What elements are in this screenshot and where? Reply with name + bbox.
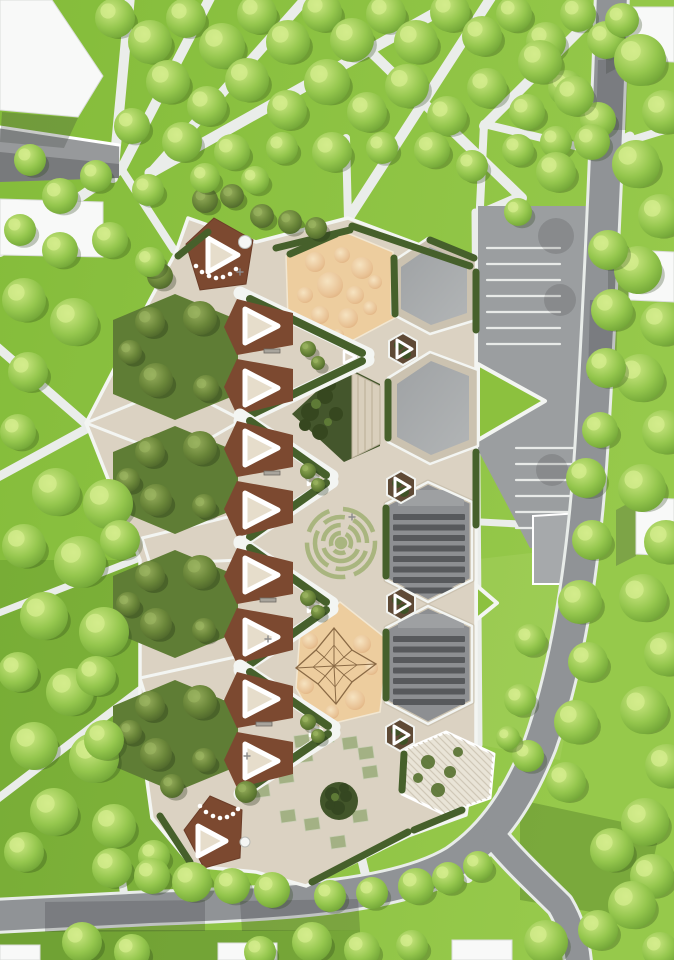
tree-highlight [188, 560, 201, 573]
stepping-dot [236, 807, 241, 812]
tree-highlight [302, 465, 308, 471]
tree-canopy [132, 174, 164, 206]
tree-canopy [190, 163, 220, 193]
tree-highlight [13, 357, 28, 372]
tree-highlight [26, 598, 44, 616]
tree-canopy [135, 437, 165, 467]
pavilion-tree [421, 755, 435, 769]
tree-highlight [472, 73, 487, 88]
stepping-dot [234, 267, 239, 272]
tree-canopy [192, 494, 216, 518]
tree-highlight [142, 844, 154, 856]
planter-box [342, 736, 359, 750]
tree-canopy [311, 356, 325, 370]
bench-row [393, 689, 465, 695]
tree-canopy [514, 624, 546, 656]
tree-highlight [573, 647, 588, 662]
bench-row [393, 535, 465, 541]
tree-highlight [219, 139, 233, 153]
tree-highlight [18, 148, 30, 160]
tree-canopy [620, 686, 668, 734]
tree-canopy [312, 132, 352, 172]
tree-canopy [100, 520, 140, 560]
tree-highlight [188, 436, 201, 449]
tree-canopy [135, 307, 165, 337]
tree-canopy [347, 92, 387, 132]
tree-highlight [84, 164, 96, 176]
stepping-dot [221, 275, 226, 280]
tree-highlight [61, 543, 81, 563]
tree-highlight [36, 794, 54, 812]
tree-highlight [651, 750, 668, 767]
bench-row [393, 514, 465, 520]
tree-canopy [578, 910, 618, 950]
sand-mound [302, 633, 318, 649]
tree-highlight [197, 379, 207, 389]
tree-canopy [20, 592, 68, 640]
tree-highlight [192, 91, 207, 106]
tree-canopy [432, 862, 464, 894]
shrub-light [311, 399, 321, 409]
tree-highlight [139, 251, 150, 262]
tree-canopy [591, 289, 633, 331]
tree-highlight [403, 873, 417, 887]
tree-highlight [9, 837, 24, 852]
planting-circle-highlight [331, 793, 339, 801]
tree-canopy [300, 714, 316, 730]
tree-canopy [92, 804, 136, 848]
stepping-dot [211, 814, 216, 819]
tree-highlight [8, 530, 25, 547]
parking-shadow [538, 218, 574, 254]
tree-highlight [621, 41, 641, 61]
bench-row [393, 577, 465, 583]
tree-canopy [618, 464, 666, 512]
planting-circle-shrub [339, 783, 349, 793]
tree-highlight [134, 26, 151, 43]
tree-highlight [571, 463, 586, 478]
tree-highlight [432, 101, 447, 116]
building-roof [452, 940, 512, 960]
tree-highlight [52, 674, 70, 692]
tree-highlight [67, 927, 82, 942]
small-triangle-pad [387, 471, 415, 503]
tree-canopy [546, 762, 586, 802]
tree-highlight [188, 306, 201, 319]
stepping-dot [228, 272, 233, 277]
tree-highlight [119, 595, 128, 604]
tree-highlight [281, 213, 290, 222]
tree-canopy [54, 536, 106, 588]
tree-highlight [560, 706, 577, 723]
tree-highlight [646, 308, 663, 325]
tree-highlight [336, 24, 353, 41]
tree-canopy [456, 150, 488, 182]
tree-canopy [116, 592, 140, 616]
stepping-dot [214, 276, 219, 281]
tree-canopy [10, 722, 58, 770]
tree-highlight [144, 612, 156, 624]
tree-highlight [152, 66, 169, 83]
tree-canopy [300, 463, 316, 479]
bench-row [393, 636, 465, 642]
sand-mound [338, 308, 358, 328]
tree-canopy [300, 590, 316, 606]
tree-highlight [98, 810, 115, 827]
tree-highlight [506, 138, 518, 150]
tree-canopy [50, 298, 98, 346]
tree-canopy [92, 848, 132, 888]
tree-canopy [134, 858, 170, 894]
sand-mound [345, 690, 365, 710]
site-plan-render [0, 0, 674, 960]
tree-canopy [183, 431, 217, 465]
tree-highlight [259, 877, 273, 891]
bench-row [393, 556, 465, 562]
tree-highlight [56, 304, 74, 322]
tree-highlight [163, 777, 172, 786]
tree-canopy [0, 414, 36, 450]
tree-canopy [558, 580, 602, 624]
tree-highlight [8, 218, 20, 230]
tree-highlight [188, 690, 201, 703]
tree-highlight [238, 784, 246, 792]
stepping-dot [194, 264, 199, 269]
sand-mound [346, 286, 364, 304]
tree-highlight [194, 167, 205, 178]
planter-box [358, 746, 375, 760]
tree-canopy [4, 832, 44, 872]
tree-canopy [192, 748, 216, 772]
tree-canopy [42, 178, 78, 214]
tree-canopy [160, 774, 184, 798]
tree-highlight [16, 728, 34, 746]
tree-highlight [508, 202, 519, 213]
tree-highlight [626, 692, 644, 710]
tree-canopy [183, 555, 217, 589]
tree-highlight [597, 295, 613, 311]
tree-canopy [590, 828, 634, 872]
tree-canopy [266, 132, 298, 164]
bench-row [393, 668, 465, 674]
tree-canopy [250, 204, 274, 228]
tree-canopy [220, 184, 244, 208]
tree-canopy [241, 166, 269, 194]
tree-highlight [467, 21, 482, 36]
tree-highlight [272, 95, 287, 110]
tree-highlight [205, 29, 222, 46]
tree-highlight [564, 586, 581, 603]
tree-highlight [508, 688, 520, 700]
round-table [240, 837, 250, 847]
tree-canopy [14, 144, 46, 176]
stepping-dot [218, 816, 223, 821]
tree-highlight [400, 934, 412, 946]
maze-center [337, 539, 345, 547]
tree-highlight [144, 368, 157, 381]
tree-highlight [97, 853, 112, 868]
bench-row [393, 546, 465, 552]
tree-highlight [313, 358, 318, 363]
tree-canopy [183, 301, 217, 335]
tree-canopy [311, 729, 325, 743]
tree-canopy [574, 124, 610, 160]
tree-canopy [394, 20, 438, 64]
sand-mound [368, 275, 382, 289]
tree-canopy [266, 20, 310, 64]
tree-canopy [414, 132, 450, 168]
tree-highlight [524, 46, 541, 63]
tree-canopy [554, 76, 594, 116]
shrub [329, 407, 343, 421]
tree-highlight [514, 99, 528, 113]
tree-canopy [462, 16, 502, 56]
tree-highlight [370, 136, 382, 148]
tree-highlight [219, 873, 233, 887]
tree-canopy [496, 726, 520, 750]
tree-canopy [140, 738, 172, 770]
tree-canopy [30, 788, 78, 836]
tree-highlight [302, 592, 308, 598]
sand-mound [363, 301, 377, 315]
tree-highlight [541, 157, 556, 172]
tree-canopy [504, 684, 536, 716]
stepping-dot [200, 270, 205, 275]
tree-highlight [593, 235, 608, 250]
tree-canopy [566, 458, 606, 498]
tree-highlight [501, 1, 515, 15]
tree-highlight [518, 628, 530, 640]
tree-highlight [371, 0, 386, 15]
tree-canopy [385, 64, 429, 108]
tree-highlight [551, 767, 566, 782]
tree-highlight [579, 129, 593, 143]
terrace-rows [393, 614, 465, 705]
tree-canopy [80, 160, 112, 192]
tree-highlight [436, 866, 448, 878]
tree-highlight [177, 867, 192, 882]
tree-highlight [318, 884, 330, 896]
tree-highlight [248, 940, 260, 952]
tree-canopy [8, 352, 48, 392]
sand-mound [317, 272, 343, 298]
small-triangle-pad [389, 333, 417, 365]
tree-canopy [463, 851, 493, 881]
tree-canopy [84, 720, 124, 760]
tree-canopy [140, 484, 172, 516]
tree-highlight [86, 614, 105, 633]
tree-canopy [254, 872, 290, 908]
pavilion-tree [413, 773, 423, 783]
tree-canopy [79, 607, 129, 657]
tree-canopy [366, 132, 398, 164]
tree-highlight [499, 729, 508, 738]
sand-mound [351, 257, 373, 279]
bench [264, 471, 280, 475]
tree-highlight [614, 887, 632, 905]
tree-highlight [139, 311, 150, 322]
sand-mound [297, 287, 313, 303]
tiered-seating [352, 372, 380, 458]
tree-highlight [308, 220, 316, 228]
tree-highlight [310, 65, 327, 82]
tree-canopy [214, 868, 250, 904]
tree-canopy [504, 198, 532, 226]
tree-highlight [650, 526, 667, 543]
bench [260, 598, 276, 602]
tree-canopy [554, 700, 598, 744]
shrub-light [324, 418, 332, 426]
planting-circle-shrub [325, 800, 335, 810]
tree-canopy [183, 685, 217, 719]
tree-highlight [272, 26, 289, 43]
shrub [312, 424, 328, 440]
hedge-strip [394, 258, 395, 314]
tree-highlight [577, 525, 592, 540]
tree-canopy [304, 59, 350, 105]
tree-highlight [565, 1, 579, 15]
tree-highlight [47, 237, 61, 251]
tree-canopy [76, 656, 116, 696]
tree-canopy [118, 340, 142, 364]
tree-highlight [100, 3, 115, 18]
tree-highlight [139, 695, 150, 706]
stepping-dot [204, 810, 209, 815]
bench-row [393, 567, 465, 573]
tree-canopy [192, 618, 216, 642]
tree-canopy [330, 18, 374, 62]
planter-box [362, 765, 379, 779]
tree-highlight [38, 474, 56, 492]
tree-highlight [313, 607, 318, 612]
tree-canopy [92, 222, 128, 258]
bench-row [393, 678, 465, 684]
tree-canopy [4, 214, 36, 246]
tree-highlight [242, 0, 257, 15]
bench-row [393, 525, 465, 531]
tree-canopy [42, 232, 78, 268]
tree-highlight [400, 26, 417, 43]
tree-canopy [139, 363, 173, 397]
tree-canopy [311, 478, 325, 492]
tree-canopy [509, 94, 545, 130]
tree-canopy [162, 122, 202, 162]
tree-canopy [305, 217, 327, 239]
tree-canopy [235, 781, 257, 803]
pavilion-tree [444, 766, 456, 778]
stepping-dot [231, 812, 236, 817]
tree-highlight [119, 113, 133, 127]
tree-highlight [587, 417, 601, 431]
tree-highlight [583, 915, 598, 930]
stepping-dot [198, 804, 203, 809]
tree-highlight [460, 154, 472, 166]
bench-row [393, 647, 465, 653]
shrub [299, 419, 311, 431]
tree-canopy [427, 96, 467, 136]
tree-canopy [582, 412, 618, 448]
tree-highlight [297, 927, 312, 942]
tree-highlight [119, 471, 128, 480]
tree-canopy [586, 348, 626, 388]
tree-highlight [139, 441, 150, 452]
tree-highlight [144, 742, 156, 754]
tree-highlight [136, 178, 148, 190]
tree-highlight [592, 26, 606, 40]
tree-canopy [311, 605, 325, 619]
tree-canopy [187, 86, 227, 126]
tree-highlight [650, 638, 667, 655]
tree-canopy [612, 140, 660, 188]
tree-canopy [536, 152, 576, 192]
sand-mound [353, 635, 371, 653]
tree-canopy [356, 877, 388, 909]
tree-highlight [317, 137, 332, 152]
tree-highlight [139, 565, 150, 576]
tree-highlight [270, 136, 282, 148]
tree-canopy [140, 608, 172, 640]
building-shadow [0, 112, 78, 148]
small-triangle-pad [386, 719, 414, 751]
tree-canopy [398, 868, 434, 904]
tree-canopy [135, 247, 165, 277]
tree-highlight [419, 137, 433, 151]
tree-canopy [502, 134, 534, 166]
stepping-dot [225, 815, 230, 820]
tree-highlight [559, 81, 574, 96]
tree-highlight [648, 416, 665, 433]
pavilion-tree [431, 783, 445, 797]
tree-canopy [267, 90, 307, 130]
tree-canopy [614, 34, 666, 86]
bench-row [393, 657, 465, 663]
tree-highlight [591, 353, 606, 368]
tree-highlight [167, 127, 182, 142]
tree-canopy [2, 278, 46, 322]
tree-highlight [647, 937, 661, 951]
round-table [239, 236, 252, 249]
tree-highlight [5, 419, 19, 433]
site-plan-svg [0, 0, 674, 960]
tree-highlight [8, 284, 25, 301]
tree-canopy [114, 108, 150, 144]
tree-highlight [245, 170, 256, 181]
bench [256, 722, 272, 726]
tree-canopy [135, 561, 165, 591]
tree-highlight [231, 64, 248, 81]
tree-highlight [3, 657, 18, 672]
tree-highlight [596, 834, 613, 851]
tree-highlight [195, 751, 204, 760]
tree-highlight [360, 881, 372, 893]
tree-highlight [391, 70, 408, 87]
tree-highlight [544, 130, 556, 142]
tree-highlight [302, 343, 308, 349]
pavilion-tree [453, 747, 463, 757]
tree-highlight [467, 855, 478, 866]
tree-highlight [648, 96, 665, 113]
tree-canopy [214, 134, 250, 170]
tree-highlight [530, 926, 547, 943]
tree-canopy [225, 58, 269, 102]
tree-canopy [128, 20, 172, 64]
tree-highlight [195, 497, 204, 506]
tree-highlight [223, 187, 232, 196]
tree-highlight [302, 716, 308, 722]
tree-canopy [572, 520, 612, 560]
tree-highlight [105, 525, 120, 540]
sand-mound [298, 678, 314, 694]
